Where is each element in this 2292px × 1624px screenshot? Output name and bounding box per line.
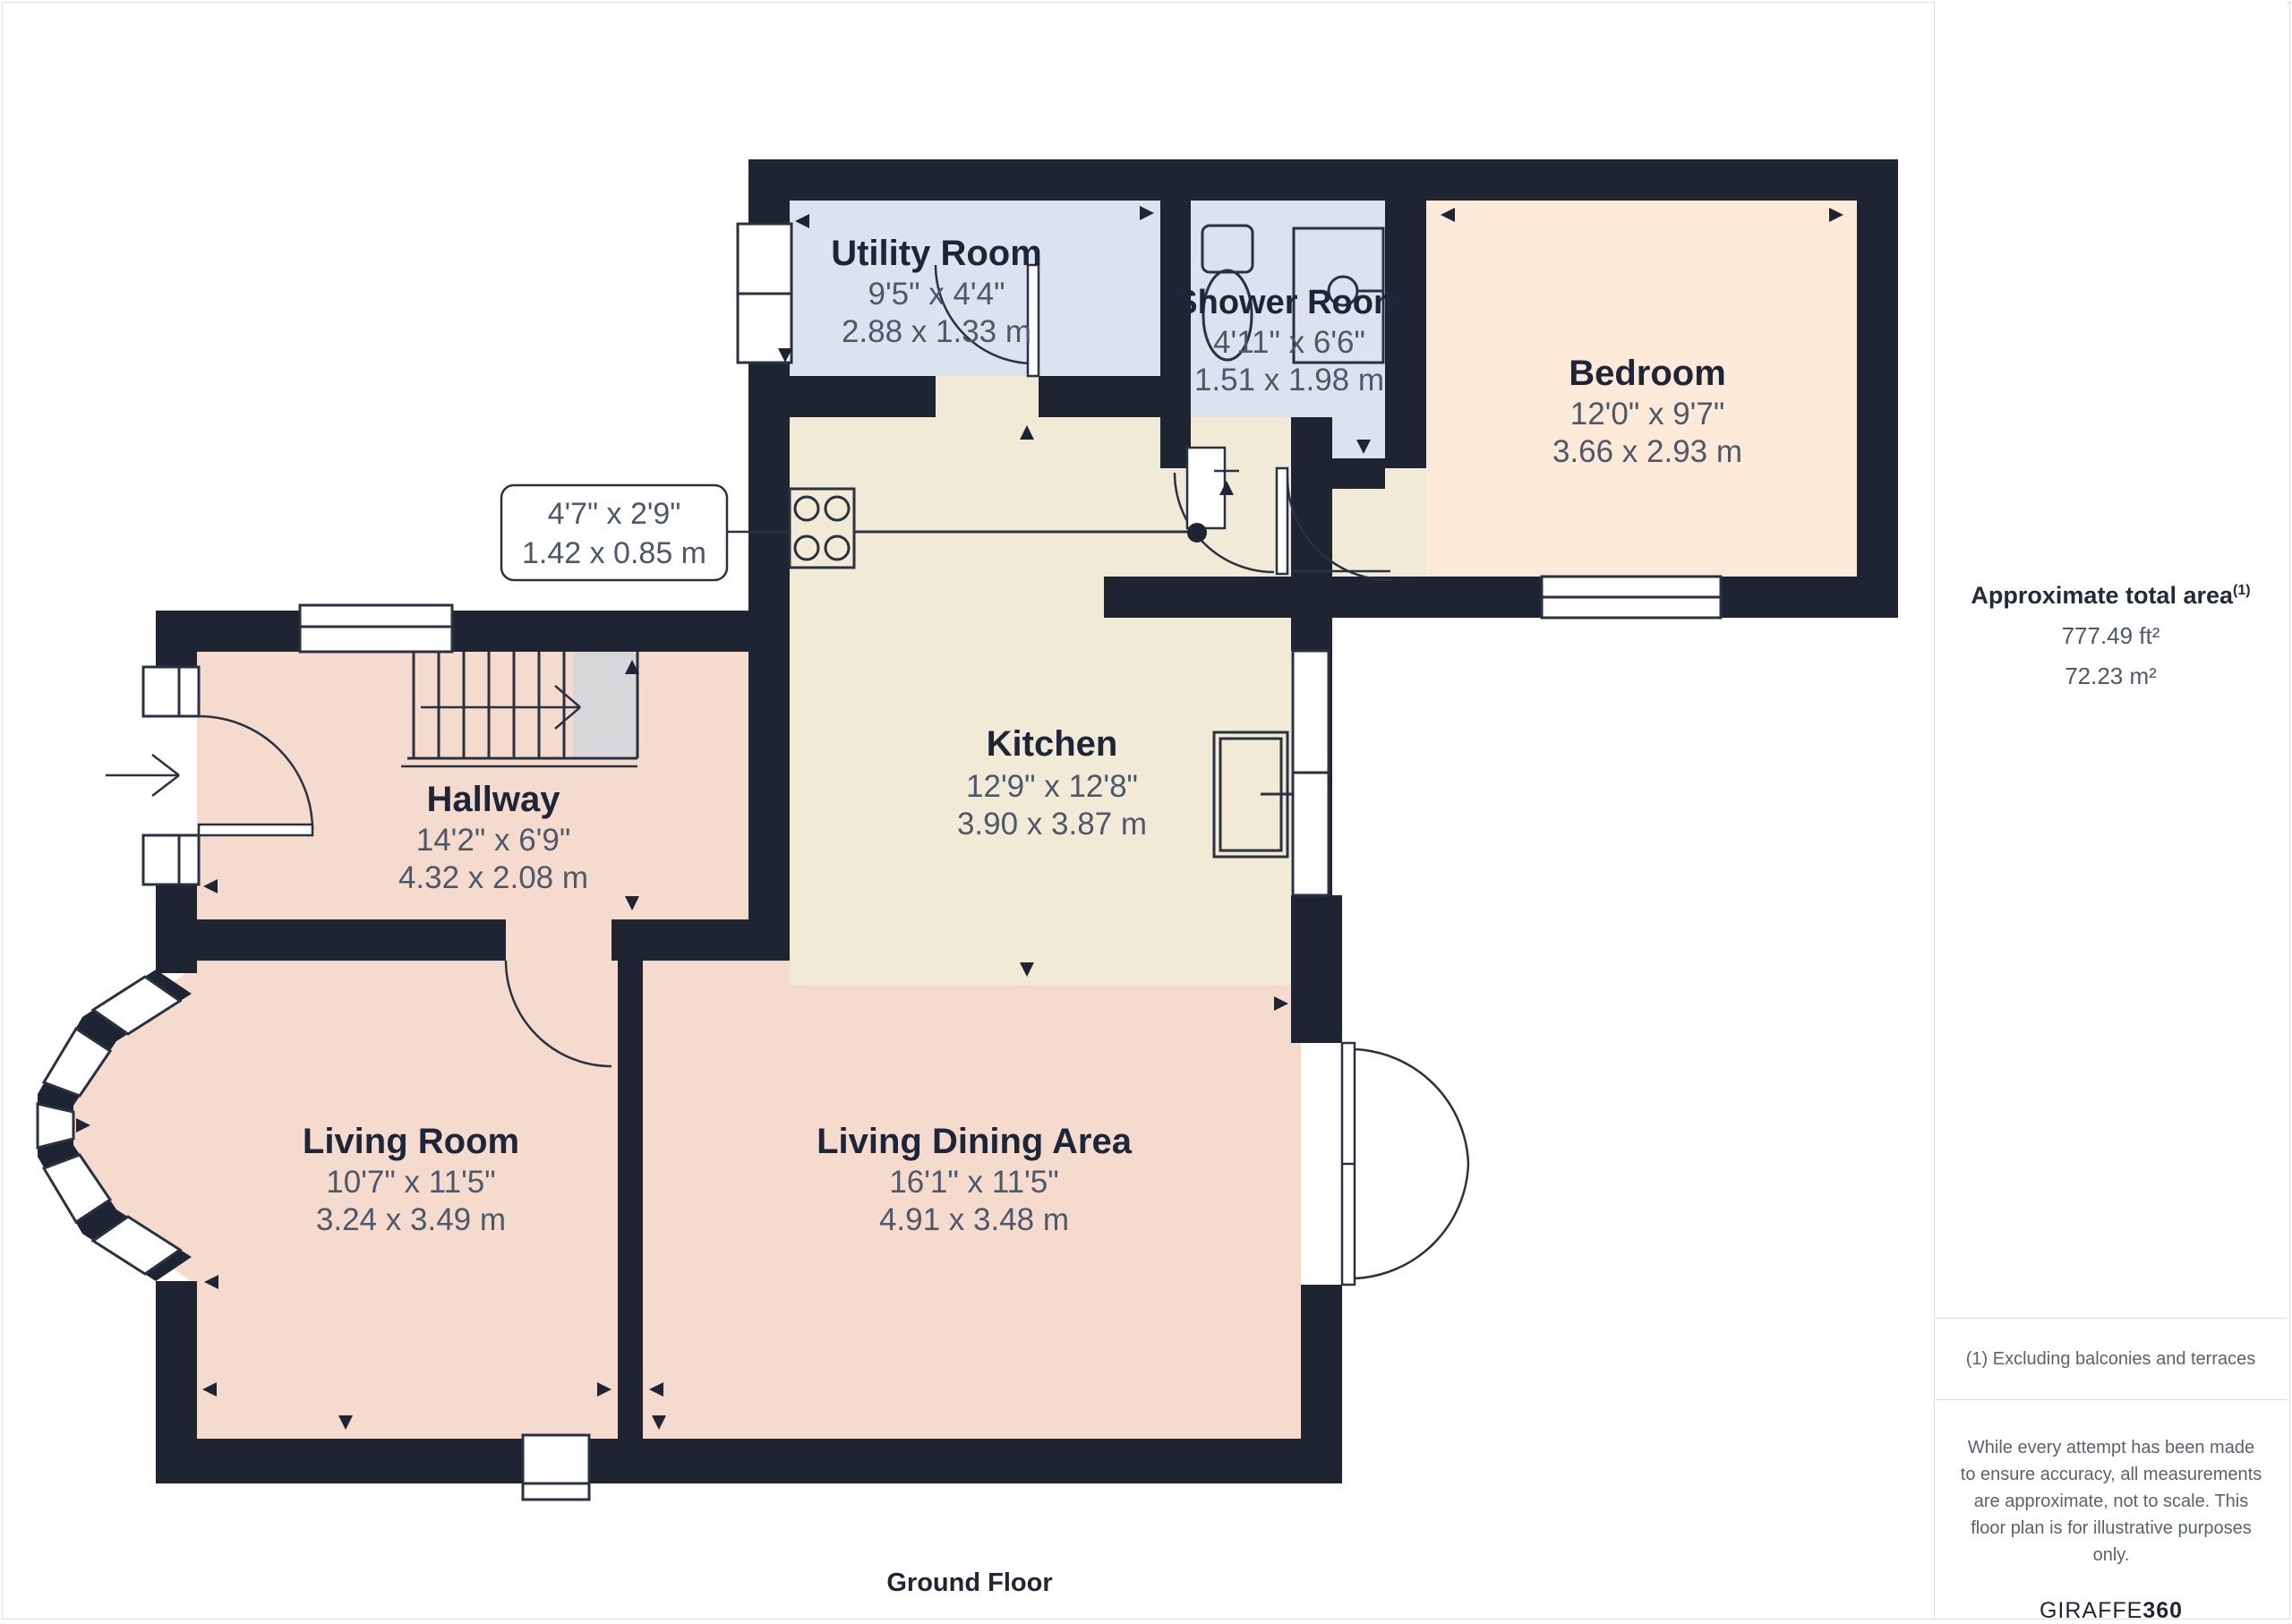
living-room-door-gap	[506, 919, 611, 961]
info-panel: Approximate total area(1) 777.49 ft² 72.…	[1934, 2, 2287, 1619]
svg-text:12'9" x 12'8": 12'9" x 12'8"	[966, 769, 1138, 804]
brand-light: GIRAFFE	[2040, 1598, 2142, 1623]
dimension-callout: 4'7" x 2'9" 1.42 x 0.85 m	[501, 485, 790, 580]
entry-arrow-icon	[106, 755, 179, 796]
total-area-block: Approximate total area(1) 777.49 ft² 72.…	[1935, 582, 2287, 690]
living-dining-floor	[643, 961, 1301, 1439]
svg-text:Living Room: Living Room	[303, 1122, 519, 1161]
bottom-window	[523, 1435, 589, 1500]
living-room-label: Living Room 10'7" x 11'5" 3.24 x 3.49 m	[303, 1122, 519, 1237]
utility-window	[738, 224, 791, 363]
french-doors	[1342, 1043, 1468, 1285]
svg-text:3.90 x 3.87 m: 3.90 x 3.87 m	[957, 807, 1147, 842]
svg-text:4.91 x 3.48 m: 4.91 x 3.48 m	[879, 1202, 1069, 1237]
svg-text:16'1" x 11'5": 16'1" x 11'5"	[889, 1165, 1058, 1200]
hallway-label: Hallway 14'2" x 6'9" 4.32 x 2.08 m	[398, 780, 588, 895]
total-area-title: Approximate total area(1)	[1935, 582, 2287, 610]
total-area-sqft: 777.49 ft²	[1935, 622, 2287, 650]
svg-text:9'5" x 4'4": 9'5" x 4'4"	[868, 277, 1005, 312]
svg-text:4.32 x 2.08 m: 4.32 x 2.08 m	[398, 860, 588, 895]
svg-text:3.24 x 3.49 m: 3.24 x 3.49 m	[316, 1202, 506, 1237]
duct-box	[1187, 448, 1225, 528]
svg-text:Kitchen: Kitchen	[987, 724, 1118, 764]
entry-window-lower	[143, 835, 199, 885]
svg-text:Bedroom: Bedroom	[1569, 354, 1726, 393]
svg-text:Shower Room: Shower Room	[1175, 284, 1403, 321]
living-room-floor	[197, 961, 618, 1439]
disclaimer-block: While every attempt has been made to ens…	[1959, 1434, 2263, 1624]
svg-text:1.51 x 1.98 m: 1.51 x 1.98 m	[1194, 363, 1384, 397]
door-pivot-dot	[1187, 523, 1207, 543]
entry-window-upper	[143, 667, 199, 716]
svg-text:Living Dining Area: Living Dining Area	[817, 1122, 1133, 1161]
callout-imperial: 4'7" x 2'9"	[548, 497, 681, 531]
disclaimer-text: While every attempt has been made to ens…	[1961, 1438, 2262, 1565]
bedroom-window	[1542, 577, 1721, 618]
svg-text:3.66 x 2.93 m: 3.66 x 2.93 m	[1552, 434, 1742, 469]
svg-text:10'7" x 11'5": 10'7" x 11'5"	[326, 1165, 495, 1200]
total-area-superscript: (1)	[2233, 583, 2251, 598]
svg-text:2.88 x 1.33 m: 2.88 x 1.33 m	[842, 314, 1031, 349]
svg-text:14'2" x 6'9": 14'2" x 6'9"	[416, 823, 571, 858]
area-footnote: (1) Excluding balconies and terraces	[1935, 1318, 2287, 1400]
svg-text:Hallway: Hallway	[427, 780, 561, 819]
giraffe360-logo: GIRAFFE360	[1959, 1597, 2263, 1624]
floor-title: Ground Floor	[844, 1568, 1095, 1598]
hallway-top-window	[300, 605, 452, 652]
svg-text:Utility Room: Utility Room	[831, 234, 1042, 273]
stair-landing	[573, 652, 637, 758]
bedroom-label: Bedroom 12'0" x 9'7" 3.66 x 2.93 m	[1552, 354, 1742, 469]
svg-text:12'0" x 9'7": 12'0" x 9'7"	[1570, 397, 1725, 432]
brand-bold: 360	[2142, 1598, 2183, 1623]
floorplan-page: { "floor_title": "Ground Floor", "rooms"…	[0, 0, 2292, 1621]
total-area-sqm: 72.23 m²	[1935, 662, 2287, 690]
total-area-title-text: Approximate total area	[1971, 582, 2233, 609]
svg-text:4'11" x 6'6": 4'11" x 6'6"	[1213, 325, 1365, 360]
callout-metric: 1.42 x 0.85 m	[522, 536, 706, 570]
utility-door-gap	[936, 376, 1039, 417]
